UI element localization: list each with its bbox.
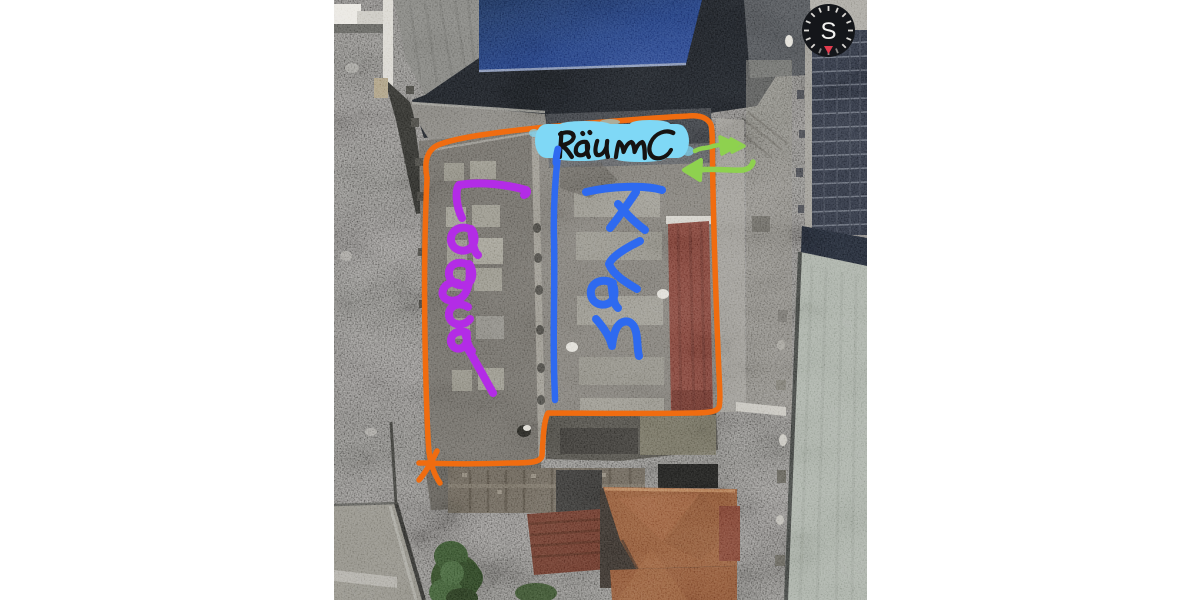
svg-text:S: S [820,18,836,45]
